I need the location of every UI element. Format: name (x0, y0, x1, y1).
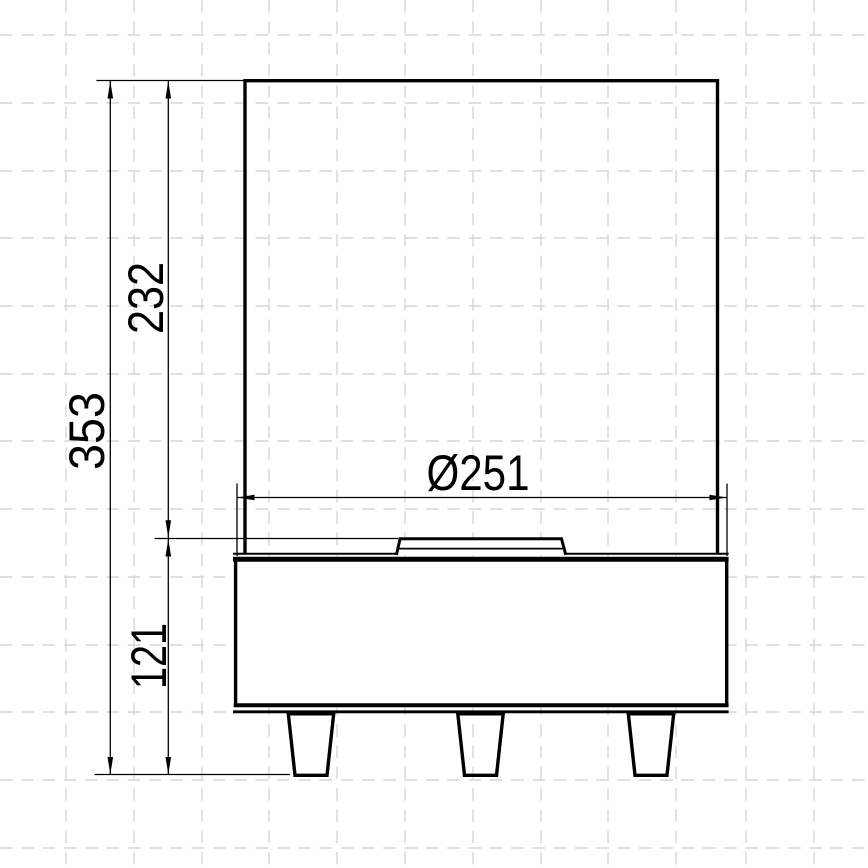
arrowhead-down-icon (108, 757, 114, 775)
dim-label-base-diameter: Ø251 (427, 445, 530, 501)
fuel-tray-fill (397, 539, 566, 555)
arrowhead-up-icon (166, 539, 172, 557)
arrowhead-up-icon (108, 81, 114, 99)
leg-right (628, 714, 673, 776)
arrowhead-down-icon (166, 520, 172, 538)
arrowhead-down-icon (166, 757, 172, 775)
leg-center (458, 714, 503, 776)
dim-label-base-height: 121 (121, 623, 177, 689)
technical-drawing: 353 232 121 Ø251 (0, 0, 868, 868)
leg-left (288, 714, 333, 776)
drawing-canvas: 353 232 121 Ø251 (0, 0, 868, 868)
fuel-tray (397, 539, 566, 555)
base-fill (234, 557, 728, 707)
dim-label-total-height: 353 (59, 392, 115, 470)
blueprint-grid (0, 0, 868, 868)
dim-label-upper-section-height: 232 (118, 262, 174, 334)
arrowhead-up-icon (166, 81, 172, 99)
legs (288, 714, 673, 776)
base-cabinet (233, 557, 729, 707)
